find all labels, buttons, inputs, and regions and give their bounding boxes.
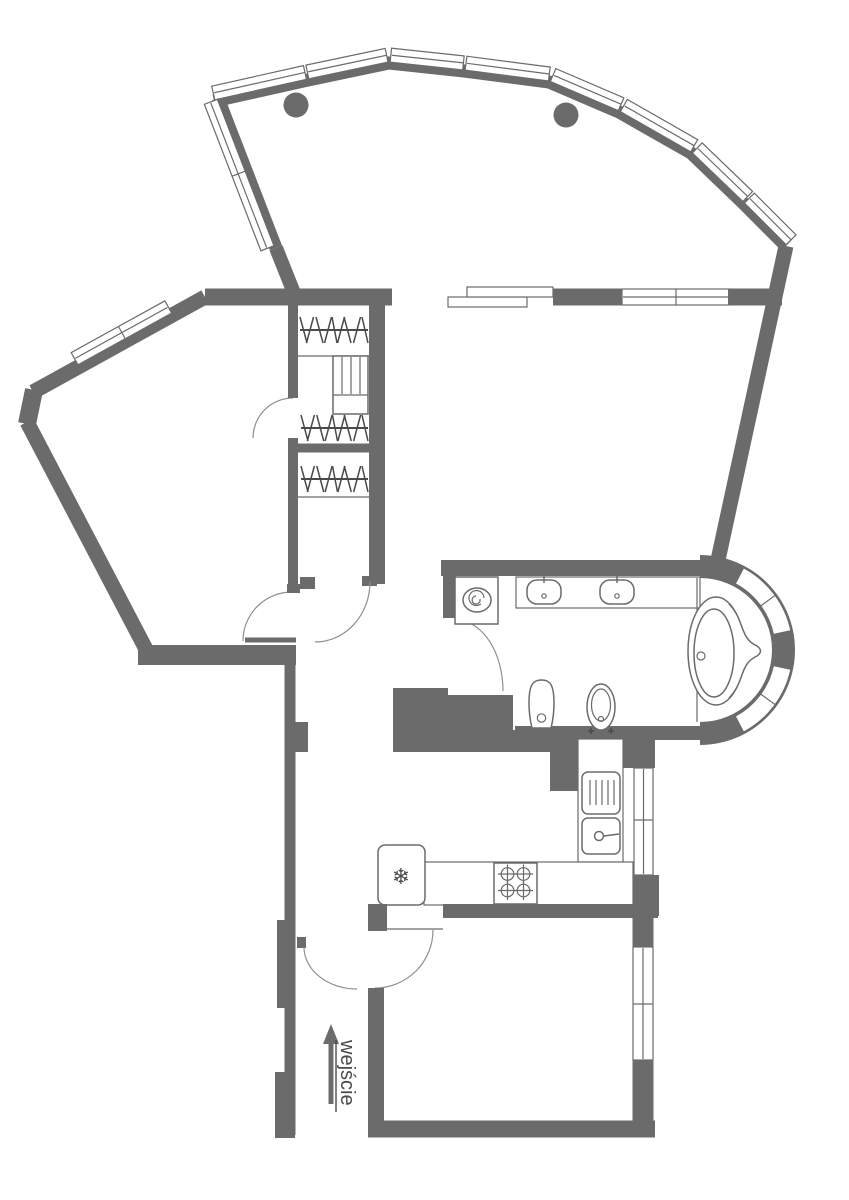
wardrobe-hanger-rod [301,415,368,441]
wall-stub [300,577,315,589]
floor-plan-page: wejście [0,0,849,1200]
bathroom-west-wall [443,560,456,618]
left-room-nw-wall [33,297,205,392]
wall-block [622,730,655,768]
wardrobe-hanger-rod [300,317,368,343]
sliding-balcony-door-panel [467,287,553,297]
shelf-unit [333,356,368,414]
floor-plan-drawing: wejście [0,0,849,1200]
window [622,289,729,305]
fridge: ❄ [378,845,425,905]
washing-machine [455,577,498,624]
wall-block [550,730,579,791]
kitchen-sink-counter [578,739,623,862]
door-arc [253,398,293,438]
bottom-right-room [368,904,658,1136]
sliding-balcony-door-panel [448,297,527,307]
door-arc [315,582,370,642]
wall-pilaster [295,722,308,752]
entrance-label: wejście [336,1039,358,1106]
balcony-left-wall [218,98,276,248]
double-sink-counter [516,576,700,608]
window [71,301,171,365]
kitchen-counter [424,862,633,905]
wall-stub [297,937,306,948]
bathroom-bay [688,555,795,745]
hall: wejście [275,655,358,1138]
door-arc [243,592,292,641]
left-room-sw-wall [27,422,148,653]
window [633,947,653,1060]
wall-pillar [277,920,295,1008]
toilet [529,680,554,728]
snowflake-icon: ❄ [392,864,410,889]
wall-pillar [275,1072,295,1138]
door-arc [456,620,503,691]
door-arc [375,930,433,988]
kitchen: ❄ [378,730,659,916]
bathroom [393,555,795,745]
wall-stub [368,904,387,931]
wardrobe-hanger-rod [301,466,368,492]
kitchen-north-wall [393,730,552,752]
left-room [27,297,296,655]
half-column [284,93,309,118]
wall-block [440,695,513,734]
wall-stub [287,584,300,593]
window-segment [692,143,752,202]
window-segment [204,99,274,251]
corner-bathtub [688,597,761,705]
window [634,768,653,875]
door-arc [304,947,357,989]
half-column [554,103,579,128]
wardrobe [287,297,377,642]
